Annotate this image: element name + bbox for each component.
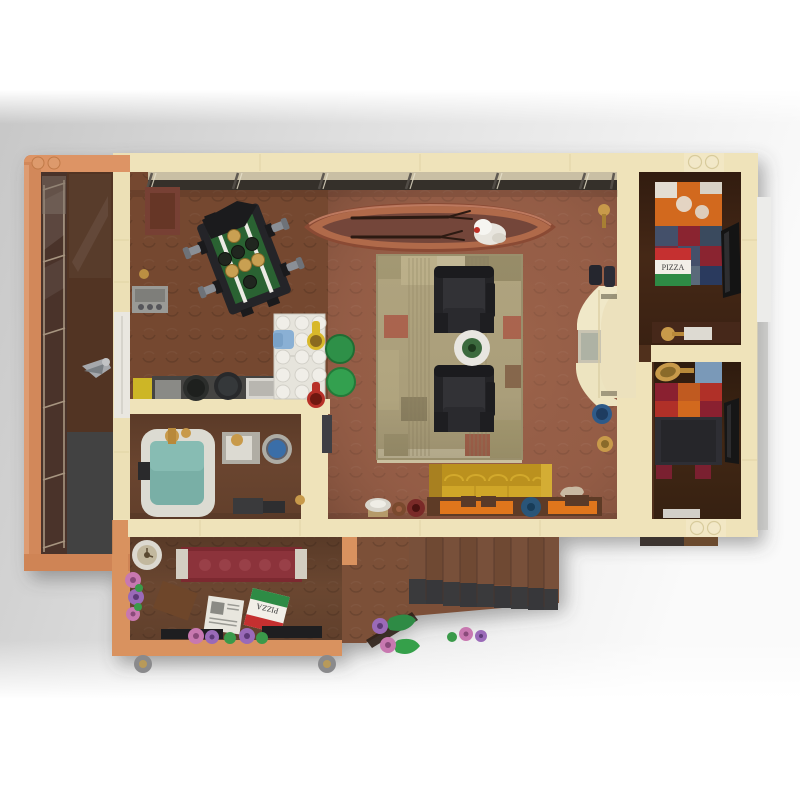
- svg-text:PIZZA: PIZZA: [662, 263, 685, 272]
